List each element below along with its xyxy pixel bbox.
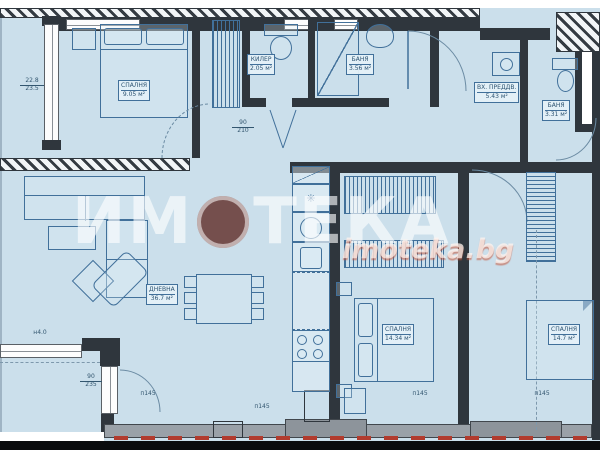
bath1-bottom-wall — [315, 98, 389, 107]
room-name: БАНЯ — [349, 56, 371, 64]
room-area: 9.05 м² — [121, 90, 147, 99]
fridge-cell — [292, 166, 330, 184]
left-window-cap-bottom — [42, 140, 61, 150]
right-edge-wall — [592, 52, 600, 440]
bath2-left-wall — [520, 40, 528, 166]
dim-value: п145 — [408, 391, 432, 398]
room-label-bath1: БАНЯ 3.56 м² — [346, 54, 374, 75]
bottom-left-white — [0, 432, 104, 441]
pillow — [358, 303, 373, 337]
room-label-entry: ВХ. ПРЕДДВ. 5.43 м² — [474, 82, 519, 103]
dim-value: п145 — [250, 404, 274, 411]
closet-bottom-wall-a — [242, 98, 266, 107]
coffee-table — [48, 226, 96, 250]
dim-value: 235 — [80, 381, 102, 389]
top-right-wall-hatch — [556, 12, 600, 52]
dining-table — [196, 274, 252, 324]
wardrobe-corridor — [526, 172, 556, 262]
chair — [251, 276, 264, 288]
wardrobe-bedroom2-mid — [344, 240, 444, 268]
balcony-column-a2 — [100, 350, 120, 366]
room-area: 14.7 м² — [551, 334, 577, 343]
burner — [313, 335, 323, 345]
toilet-bowl-2 — [557, 70, 574, 92]
dim-balcony-length: н4.0 — [28, 330, 52, 337]
bedroom2-corridor-wall — [458, 162, 469, 428]
dim-bottom-4: п145 — [530, 391, 554, 398]
washing-machine-drum — [500, 58, 513, 71]
dim-bottom-2: п145 — [250, 404, 274, 411]
dim-value: 90 — [232, 120, 254, 127]
washing-machine — [492, 52, 520, 76]
pillow — [358, 343, 373, 377]
chair — [251, 292, 264, 304]
counter-dashed — [292, 272, 330, 330]
toilet-tank — [264, 24, 298, 36]
bottom-red-dashes — [60, 436, 592, 440]
nightstand-2 — [336, 282, 352, 296]
closet-bottom-wall-b — [292, 98, 315, 107]
room-area: 5.43 м² — [477, 92, 516, 101]
chair — [184, 292, 197, 304]
room-label-closet: КИЛЕР 2.05 м² — [247, 54, 275, 75]
wardrobe-closet — [212, 20, 240, 108]
bed-fold-corner — [583, 301, 593, 311]
room-area: 3.56 м² — [349, 64, 371, 73]
corridor-door-arc — [472, 170, 527, 222]
dishwasher-door — [300, 247, 322, 269]
room-name: КИЛЕР — [250, 56, 272, 64]
room-name: СПАЛНЯ — [385, 326, 411, 334]
room-name: ВХ. ПРЕДДВ. — [477, 84, 516, 92]
hood-cell: ✳ — [292, 184, 330, 212]
dim-value: п145 — [530, 391, 554, 398]
sink-cell — [292, 212, 330, 242]
photo-bottom-band — [0, 441, 600, 450]
room-label-bedroom1: СПАЛНЯ 9.05 м² — [118, 80, 150, 101]
sink-bath1 — [366, 24, 394, 48]
window-bedroom1-left — [44, 24, 59, 142]
bath2-door-arc — [556, 118, 596, 160]
left-edge-line — [0, 18, 2, 432]
chair — [184, 276, 197, 288]
vent-shaft — [304, 390, 330, 422]
stove-symbol-icon: ✳ — [293, 193, 329, 204]
dim-value: 22.8 — [20, 78, 44, 85]
burner — [297, 335, 307, 345]
blanket-line — [101, 49, 187, 50]
pillow — [146, 28, 184, 45]
mid-exterior-wall-hatch — [0, 158, 190, 171]
blanket-line — [377, 299, 378, 381]
dim-value: н4.0 — [28, 330, 52, 337]
chair — [251, 308, 264, 320]
bench — [344, 388, 366, 414]
room-area: 3.31 м² — [545, 110, 567, 119]
toilet-tank-2 — [552, 58, 578, 70]
balcony-window — [101, 366, 118, 414]
stove-4-burners — [292, 330, 330, 362]
dim-value: 210 — [232, 127, 254, 135]
room-name: БАНЯ — [545, 102, 567, 110]
room-label-bedroom2: СПАЛНЯ 14.34 м² — [382, 324, 414, 345]
sofa-back-seat — [24, 176, 145, 220]
balcony-open-edge — [0, 362, 100, 363]
dim-balcony-door: 90 235 — [80, 374, 102, 389]
entry-door-arc — [408, 31, 466, 91]
dim-door-top: 90 210 — [232, 120, 254, 135]
room-area: 36.7 м² — [149, 294, 175, 303]
chair — [184, 308, 197, 320]
nightstand — [72, 28, 96, 50]
top-exterior-wall-hatch — [0, 8, 480, 18]
room-name: СПАЛНЯ — [121, 82, 147, 90]
dim-value: 23.5 — [20, 85, 44, 93]
closet-right-wall — [308, 18, 315, 104]
room-label-bedroom3: СПАЛНЯ 14.7 м² — [548, 324, 580, 345]
dim-left: 22.8 23.5 — [20, 78, 44, 93]
kitchen-sink-bowl — [300, 217, 322, 239]
burner — [297, 349, 307, 359]
dishwasher-cell — [292, 242, 330, 272]
floor-plan: СПАЛНЯ 9.05 м² КИЛЕР 2.05 м² БАНЯ 3.56 м… — [0, 0, 600, 450]
wardrobe-bedroom2-top — [344, 176, 436, 214]
balcony-parapet — [0, 344, 82, 358]
room-label-bath2: БАНЯ 3.31 м² — [542, 100, 570, 121]
room-label-living: ДНЕВНА 36.7 м² — [146, 284, 178, 305]
bedroom1-door-arc — [162, 104, 210, 158]
room-name: ДНЕВНА — [149, 286, 175, 294]
dim-bottom-3: п145 — [408, 391, 432, 398]
dim-value: 90 — [80, 374, 102, 381]
sofa-cushion-line — [85, 195, 86, 221]
dim-value: п145 — [136, 391, 160, 398]
room-area: 2.05 м² — [250, 64, 272, 73]
room-area: 14.34 м² — [385, 334, 411, 343]
dim-bottom-1: п145 — [136, 391, 160, 398]
door-swing-symbol — [265, 110, 301, 152]
room-name: СПАЛНЯ — [551, 326, 577, 334]
burner — [313, 349, 323, 359]
top-wall-right — [480, 28, 550, 40]
pillow — [104, 28, 142, 45]
